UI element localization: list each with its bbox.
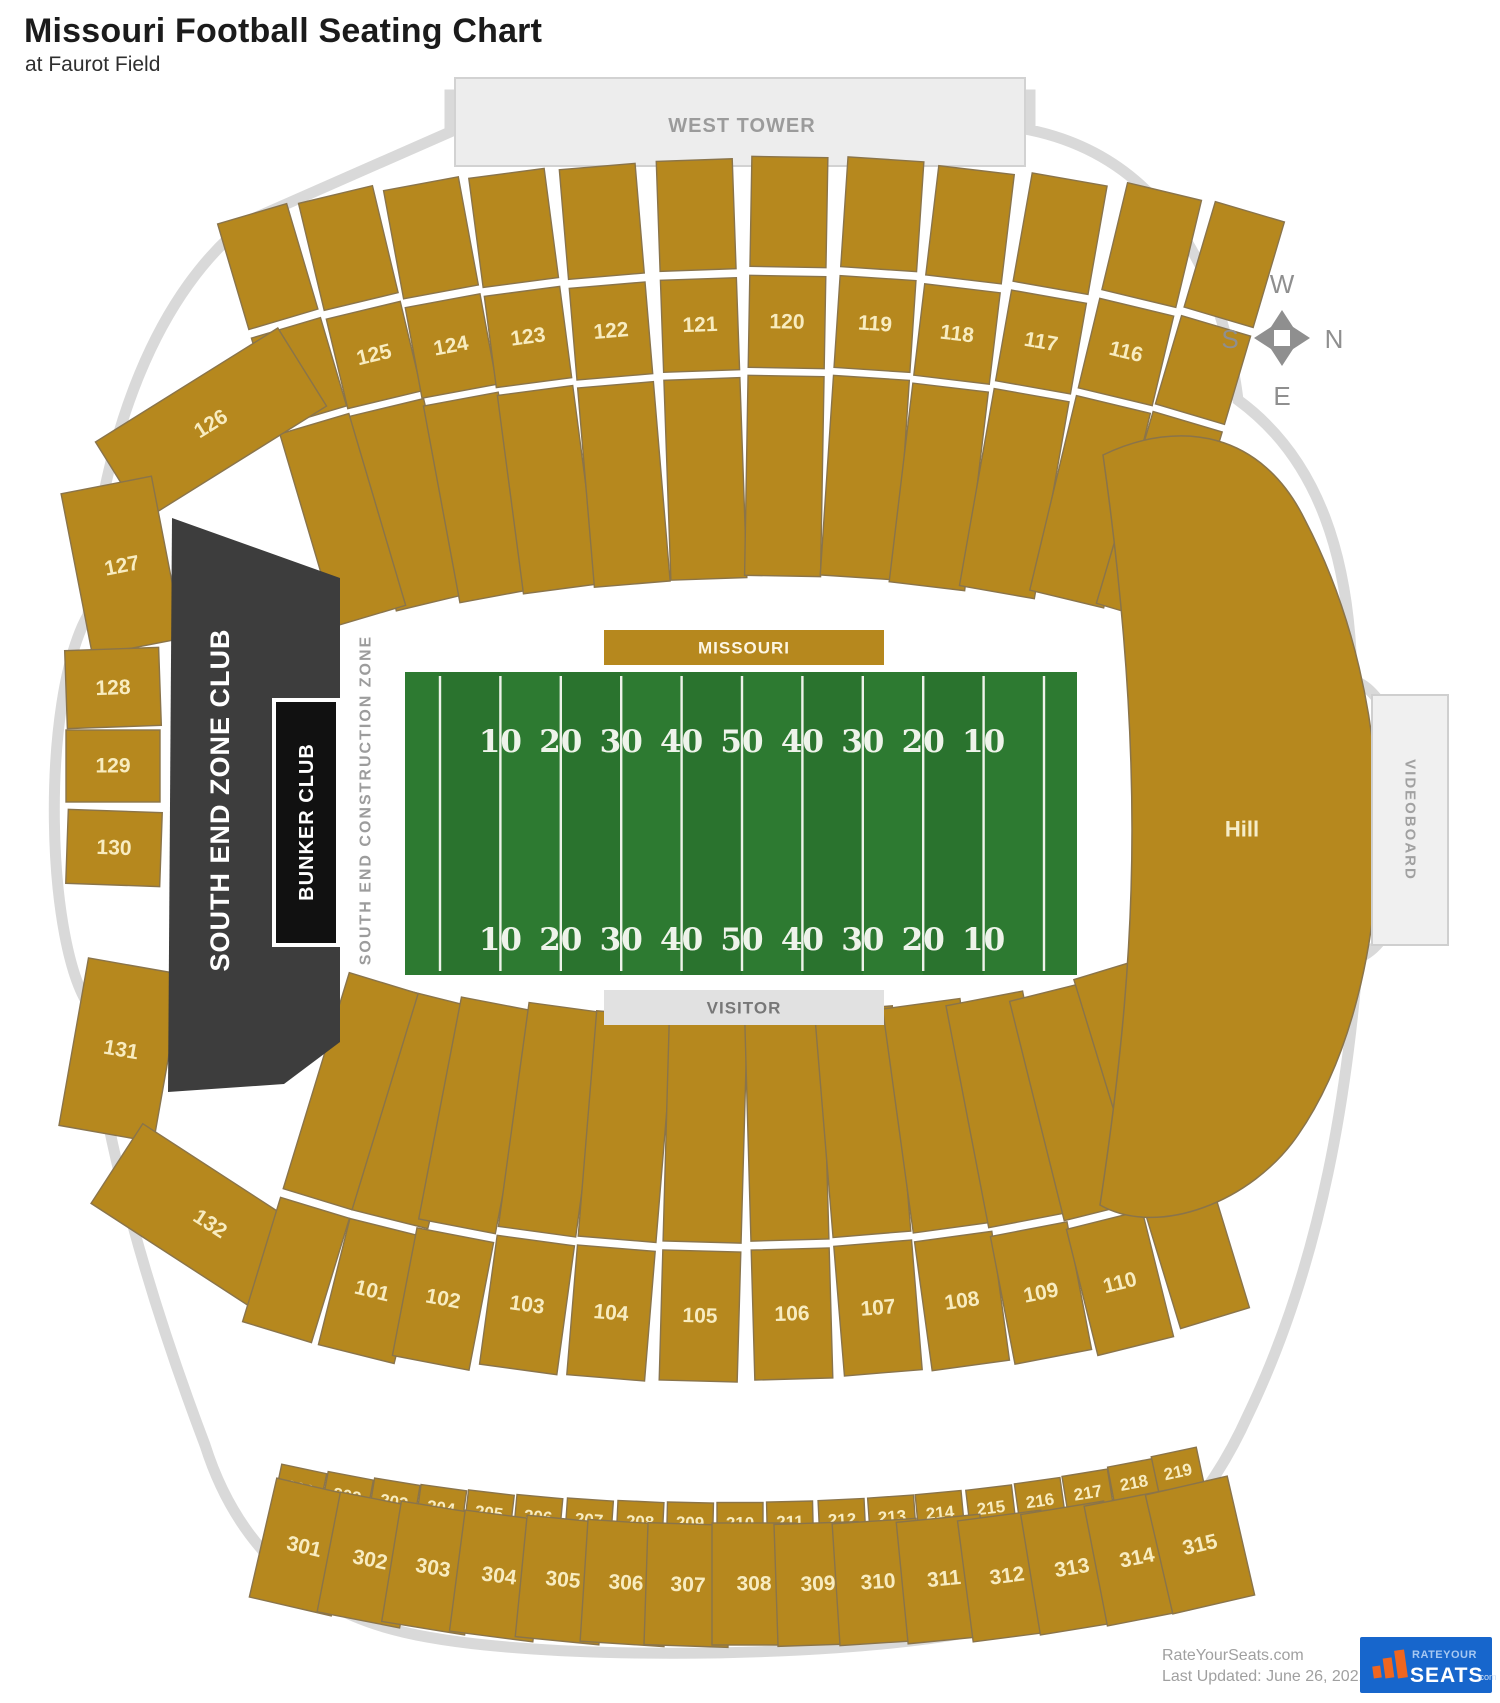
yard-number: 40 [781,724,824,760]
yard-number: 10 [479,922,522,958]
section-label: 305 [544,1567,581,1593]
compass-arrow-down-icon [1269,346,1295,366]
south-end-zone-club-label: SOUTH END ZONE CLUB [205,629,235,972]
bunker-club[interactable]: BUNKER CLUB [274,700,338,945]
logo-text-main: SEATS [1410,1664,1483,1687]
section-label: 130 [96,836,132,860]
bunker-club-label: BUNKER CLUB [296,743,318,901]
yard-number: 40 [660,724,703,760]
yard-number: 10 [962,922,1005,958]
compass-south: S [1221,324,1238,354]
section-label: 308 [736,1573,771,1596]
videoboard-label: VIDEOBOARD [1402,759,1419,881]
section-label: 306 [608,1570,644,1595]
yard-number: 40 [660,922,703,958]
stadium-map: WEST TOWER 12512412312212112011911811711… [0,0,1500,1703]
section-label: 309 [800,1572,836,1596]
yard-number: 30 [600,922,643,958]
compass-west: W [1270,269,1295,299]
west-tower-label: WEST TOWER [668,115,815,137]
section-128: 128 [65,647,162,728]
hill-label: Hill [1225,817,1259,842]
section-105: 105 [659,1015,747,1382]
yard-number: 50 [720,922,763,958]
section-121: 121 [656,159,747,580]
footer-updated: Last Updated: June 26, 2021 [1162,1668,1368,1685]
section-label: 118 [939,321,976,348]
section-label: 311 [926,1566,962,1592]
compass-east: E [1273,381,1290,411]
section-label: 307 [670,1573,706,1597]
section-label: 129 [95,755,130,778]
yard-number: 20 [539,922,582,958]
section-label: 122 [593,318,630,344]
section-129: 129 [66,730,160,802]
yard-number: 10 [962,724,1005,760]
rateyourseats-logo[interactable]: RATEYOUR SEATS .com [1360,1637,1497,1693]
yard-number: 30 [600,724,643,760]
section-label: 108 [943,1287,981,1315]
section-label: 312 [988,1562,1026,1589]
title-block: Missouri Football Seating Chart at Fauro… [24,12,542,77]
section-label: 128 [95,676,131,700]
missouri-sideline: MISSOURI [604,630,884,665]
visitor-sideline: VISITOR [604,990,884,1025]
section-123-area[interactable] [469,168,559,287]
yard-number: 30 [841,724,884,760]
section-130: 130 [66,809,163,886]
section-118-area[interactable] [926,166,1014,284]
yard-number: 20 [902,724,945,760]
missouri-label: MISSOURI [698,639,790,658]
section-label: 107 [860,1295,897,1321]
yard-number: 20 [902,922,945,958]
logo-bar-small-icon [1372,1666,1382,1679]
football-field: 101020203030404050504040303020201010 [405,672,1077,975]
construction-zone-label: SOUTH END CONSTRUCTION ZONE [358,635,375,965]
footer: RateYourSeats.com Last Updated: June 26,… [1162,1637,1497,1693]
section-label: 304 [480,1562,518,1589]
section-105-area[interactable] [663,1015,747,1243]
section-label: 104 [593,1300,630,1326]
yard-number: 40 [781,922,824,958]
yard-number: 10 [479,724,522,760]
yard-line [1043,676,1045,971]
section-120: 120 [745,156,828,576]
section-120-area[interactable] [745,375,824,576]
section-label: 103 [508,1291,546,1319]
compass-north: N [1325,324,1344,354]
section-120-area[interactable] [750,156,828,267]
logo-text-top: RATEYOUR [1412,1649,1477,1661]
visitor-label: VISITOR [707,999,782,1018]
videoboard: VIDEOBOARD [1372,695,1448,945]
section-label: 123 [509,323,547,350]
section-label: 310 [860,1569,896,1594]
section-label: 121 [682,313,718,337]
section-label: 106 [774,1302,810,1326]
logo-text-suffix: .com [1477,1672,1497,1682]
section-area[interactable] [1184,202,1284,328]
section-label: 105 [682,1304,718,1328]
yard-number: 50 [720,724,763,760]
section-121-area[interactable] [656,159,736,272]
section-label: 119 [857,311,892,336]
yard-line [439,676,441,971]
yard-number: 20 [539,724,582,760]
section-122-area[interactable] [578,382,670,588]
section-122-area[interactable] [559,163,644,279]
footer-site: RateYourSeats.com [1162,1647,1304,1664]
section-106-area[interactable] [745,1013,829,1241]
page-title: Missouri Football Seating Chart [24,12,542,51]
yard-number: 30 [841,922,884,958]
section-119-area[interactable] [841,157,924,272]
page-subtitle: at Faurot Field [25,53,542,77]
section-121-area[interactable] [664,378,747,581]
section-label: 120 [769,310,804,334]
west-tower: WEST TOWER [455,78,1025,166]
